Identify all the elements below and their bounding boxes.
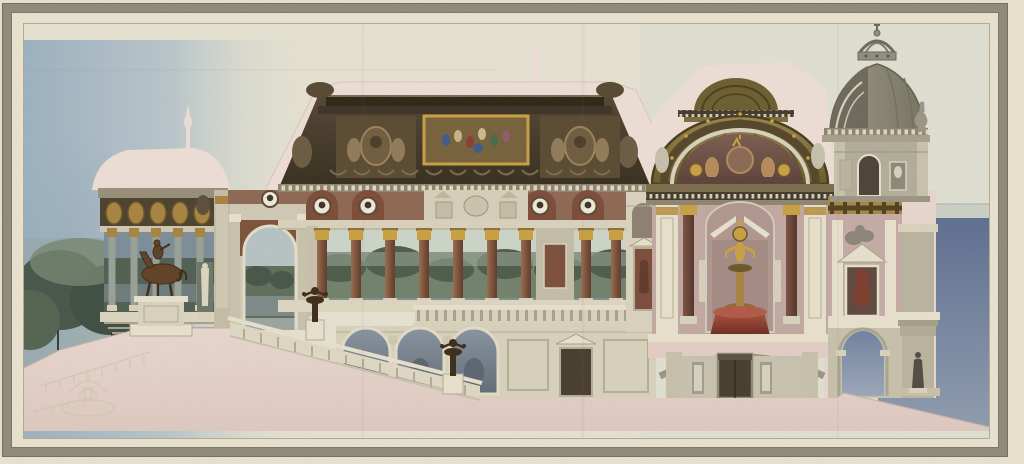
architectural-section-painting — [0, 0, 1024, 464]
paper-grain-overlay — [0, 0, 1024, 464]
painting-canvas — [0, 0, 1024, 464]
